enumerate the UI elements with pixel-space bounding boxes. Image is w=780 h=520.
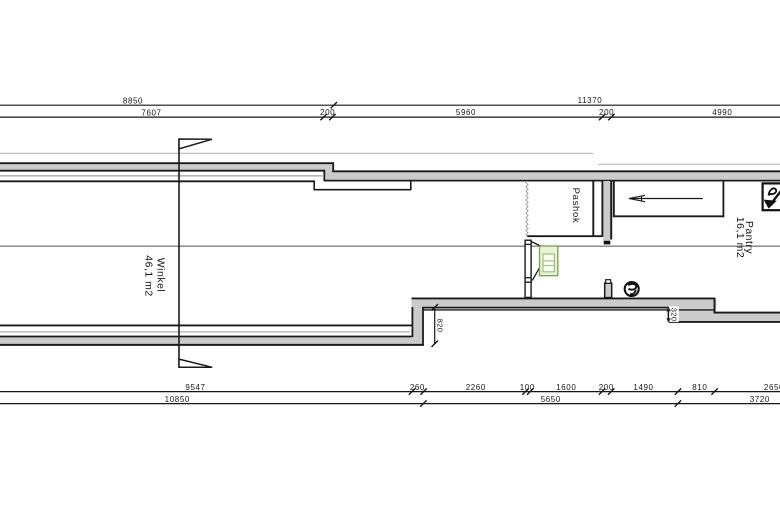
svg-text:200: 200 — [599, 108, 614, 117]
svg-text:200: 200 — [599, 383, 614, 392]
svg-text:5960: 5960 — [456, 108, 476, 117]
svg-text:100: 100 — [520, 383, 535, 392]
svg-text:16,1 m2: 16,1 m2 — [734, 217, 746, 258]
svg-text:46,1 m2: 46,1 m2 — [143, 255, 155, 296]
svg-text:9547: 9547 — [185, 383, 205, 392]
svg-text:11370: 11370 — [578, 96, 603, 105]
svg-text:2260: 2260 — [466, 383, 486, 392]
svg-text:5650: 5650 — [541, 395, 561, 404]
svg-text:Pashok: Pashok — [570, 188, 581, 224]
svg-text:Winkel: Winkel — [155, 258, 167, 293]
svg-text:200: 200 — [320, 108, 335, 117]
svg-text:10850: 10850 — [165, 395, 190, 404]
svg-text:320: 320 — [670, 308, 679, 322]
svg-text:2650: 2650 — [764, 383, 780, 392]
svg-text:7607: 7607 — [141, 108, 161, 117]
svg-text:810: 810 — [692, 383, 707, 392]
svg-text:3720: 3720 — [750, 395, 770, 404]
svg-text:260: 260 — [410, 383, 425, 392]
svg-text:8850: 8850 — [123, 96, 143, 105]
svg-text:4990: 4990 — [712, 108, 732, 117]
svg-text:1490: 1490 — [633, 383, 653, 392]
svg-text:1600: 1600 — [556, 383, 576, 392]
svg-text:820: 820 — [436, 319, 445, 333]
